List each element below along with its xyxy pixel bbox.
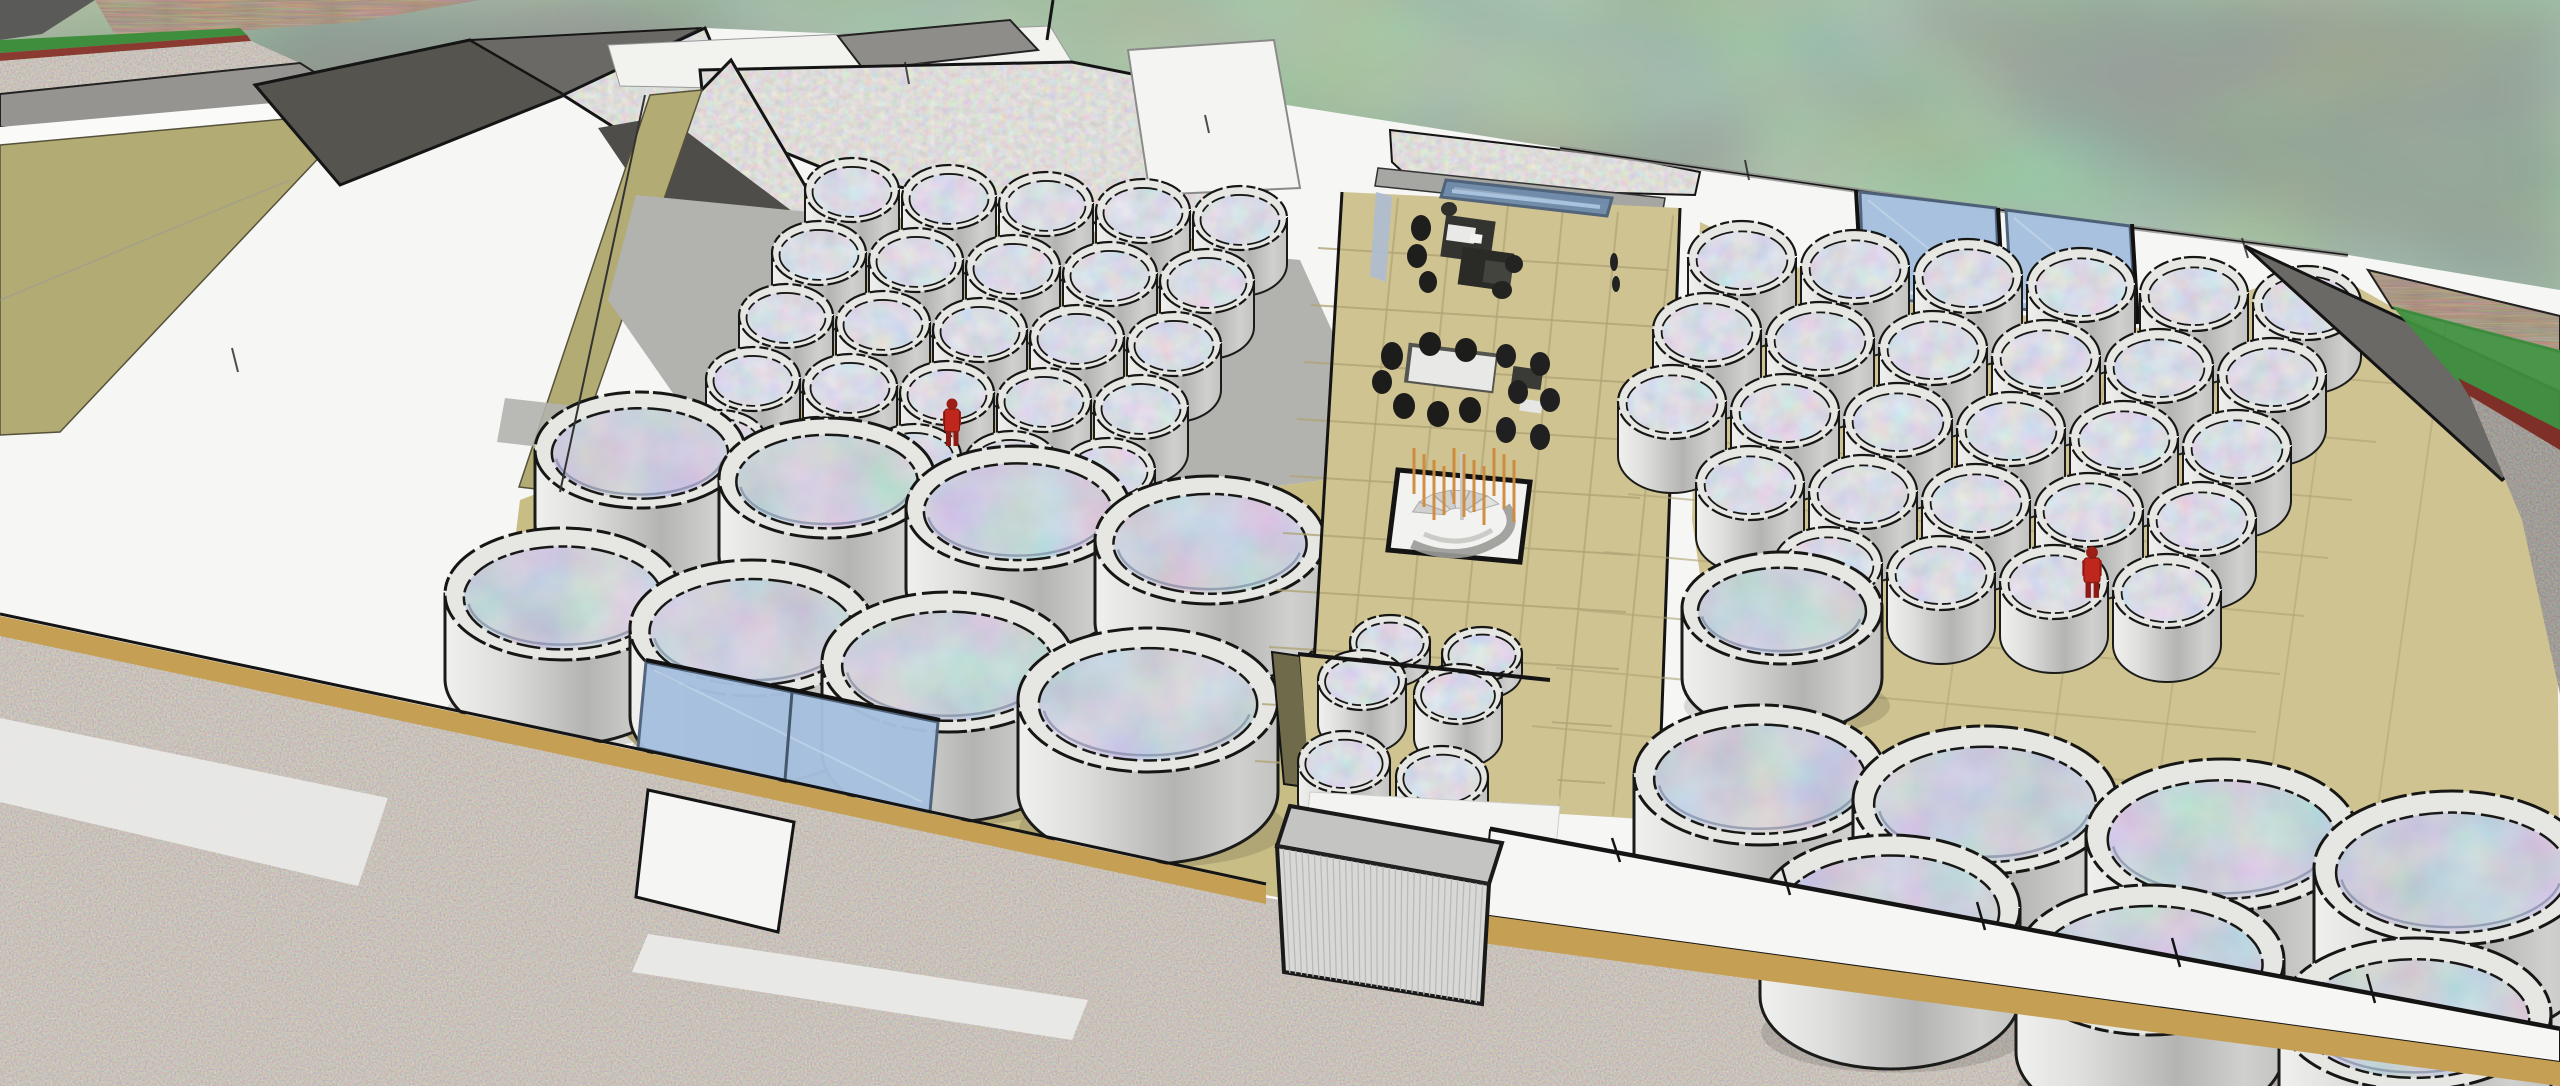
white-gable-left-hall [1128, 40, 1300, 195]
model-render-stage [0, 0, 2560, 1086]
utility-shed [1277, 806, 1502, 1004]
scene-root [0, 0, 2560, 1086]
model-viewport[interactable] [0, 0, 2560, 1086]
